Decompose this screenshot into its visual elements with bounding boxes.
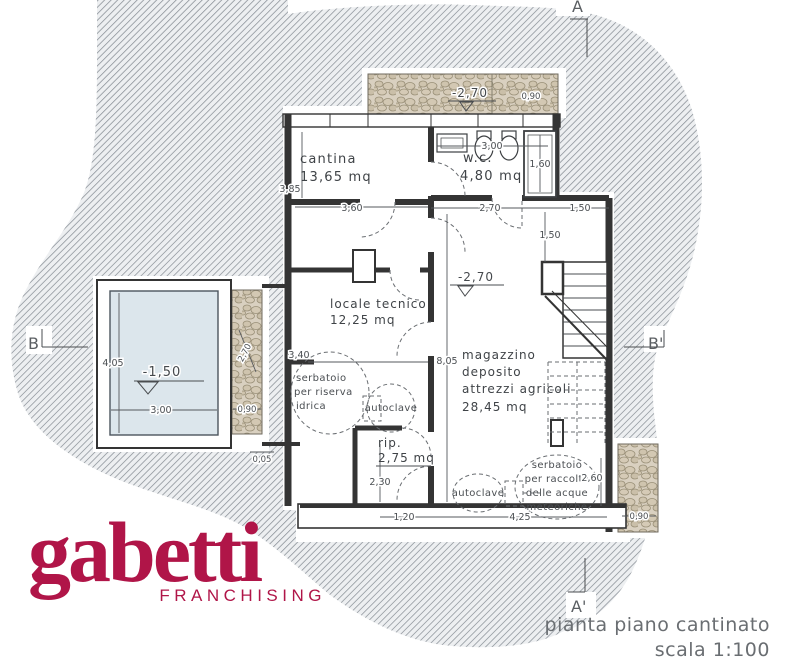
dim-top-right: 1,50 — [569, 203, 590, 214]
room-area-locale-tecnico: 12,25 mq — [330, 313, 395, 327]
autoclave-left-label: autoclave — [365, 403, 418, 414]
autoclave-right-label: autoclave — [452, 488, 505, 499]
dim-shower-depth: 1,60 — [529, 159, 550, 170]
level-pool: -1,50 — [143, 365, 182, 380]
dim-rip-height: 2,30 — [369, 477, 390, 488]
caption: pianta piano cantinato scala 1:100 — [545, 614, 770, 661]
dim-cantina-height: 3,85 — [279, 184, 300, 195]
room-label-magazzino-1: magazzino — [462, 348, 536, 362]
dim-meteo-right: 2,60 — [581, 473, 602, 484]
dim-magazzino-height: 8,05 — [436, 356, 457, 367]
serbatoio-meteoriche-line3: delle acque — [526, 488, 588, 499]
room-area-wc: 4,80 mq — [460, 169, 522, 184]
stair-landing — [542, 262, 563, 294]
dim-bottom-left: 1,20 — [393, 512, 414, 523]
dim-below-wc: 2,70 — [479, 203, 500, 214]
dim-pool-wall: 0,90 — [238, 405, 257, 415]
serbatoio-meteoriche-line2: per raccolta — [525, 474, 590, 485]
caption-title: pianta piano cantinato — [545, 614, 770, 636]
serbatoio-riserva-line1: serbatoio — [296, 373, 347, 384]
room-area-magazzino: 28,45 mq — [462, 400, 527, 414]
dim-pool-width: 3,00 — [150, 405, 171, 416]
dim-stair-landing: 1,50 — [539, 230, 560, 241]
level-magazzino: -2,70 — [458, 270, 494, 284]
room-label-rip: rip. — [378, 436, 402, 450]
room-label-wc: w.c. — [463, 151, 493, 166]
dim-left-mid: 3,40 — [288, 350, 309, 361]
room-label-magazzino-3: attrezzi agricoli — [462, 382, 571, 396]
serbatoio-riserva-line3: idrica — [296, 401, 326, 412]
room-area-rip: 2,75 mq — [378, 451, 435, 465]
level-terrace: -2,70 — [452, 86, 488, 100]
room-area-cantina: 13,65 mq — [300, 170, 372, 185]
logo-brand-text: gabetti — [28, 512, 328, 594]
dim-cantina-width: 3,60 — [341, 203, 362, 214]
room-label-cantina: cantina — [300, 152, 357, 167]
room-label-magazzino-2: deposito — [462, 365, 522, 379]
dim-patch-bottom-right: 0,90 — [630, 512, 649, 522]
serbatoio-meteoriche-line1: serbatoio — [532, 460, 583, 471]
dim-bottom-center: 4,25 — [509, 512, 530, 523]
gabetti-logo: gabetti FRANCHISING — [28, 512, 328, 606]
room-label-locale-tecnico: locale tecnico — [330, 297, 427, 311]
serbatoio-riserva-line2: per riserva — [294, 387, 353, 398]
section-marker-a: A — [572, 0, 583, 16]
serbatoio-meteoriche-line4: meteoriche — [527, 502, 588, 513]
floor-plan-page: serbatoio per riserva idrica autoclave a… — [0, 0, 802, 666]
section-marker-b-prime: B' — [648, 334, 663, 353]
section-marker-b: B — [28, 334, 39, 353]
dim-pool-base: 0,05 — [253, 455, 272, 465]
toilet — [500, 136, 518, 160]
dim-terrace-right: 0,90 — [522, 92, 541, 102]
dim-pool-height: 4,05 — [102, 358, 123, 369]
caption-scale: scala 1:100 — [655, 639, 770, 661]
